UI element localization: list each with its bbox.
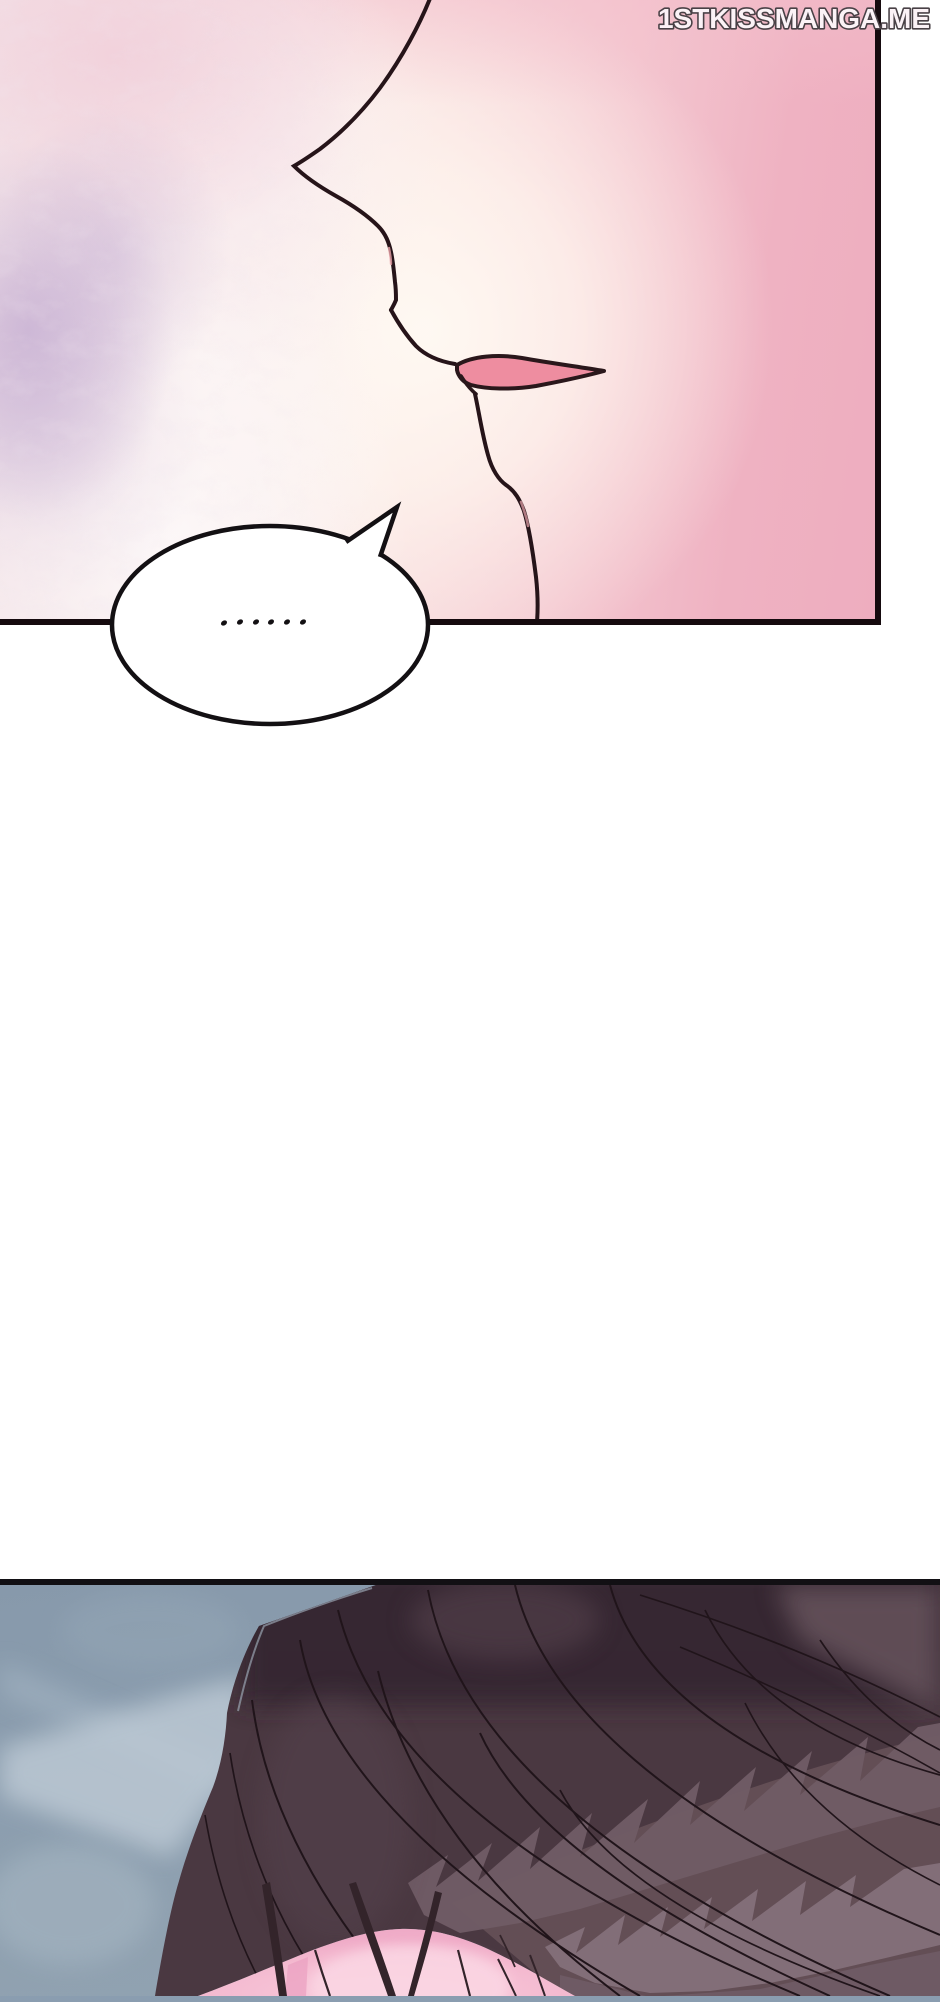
svg-text:1STKISSMANGA.ME: 1STKISSMANGA.ME bbox=[658, 3, 930, 34]
